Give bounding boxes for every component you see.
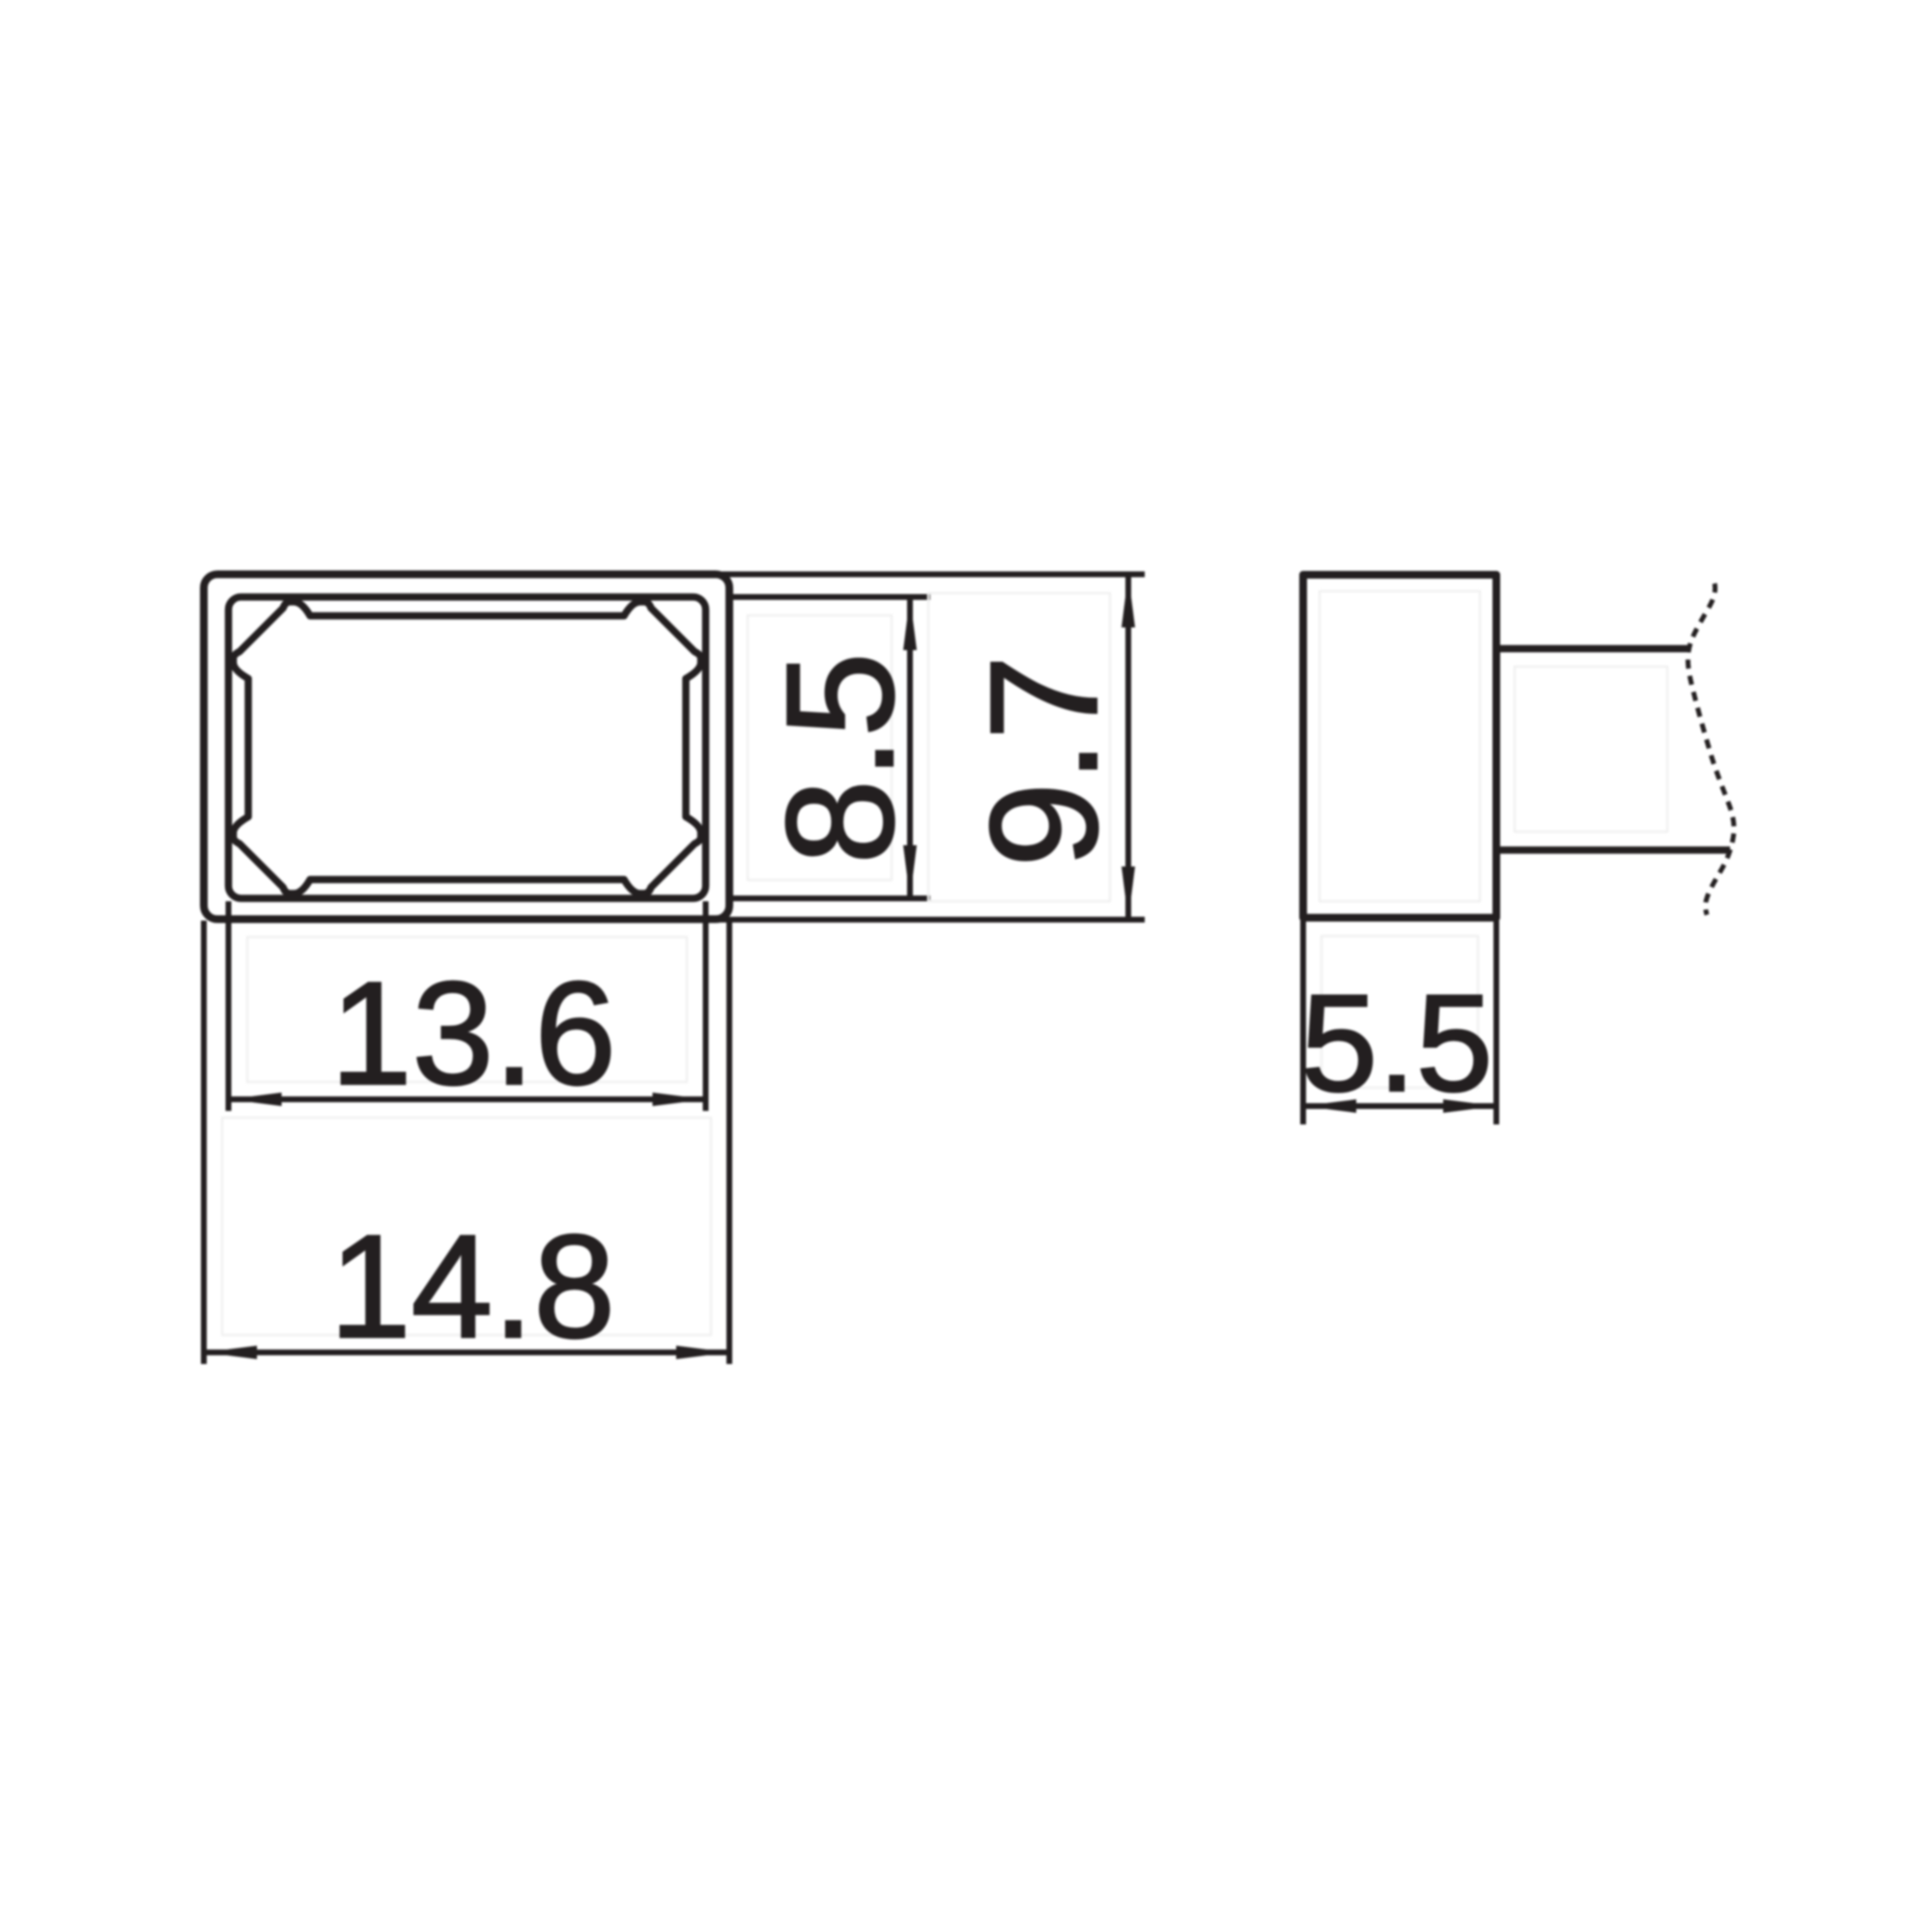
svg-text:13.6: 13.6	[330, 952, 616, 1116]
svg-text:5.5: 5.5	[1301, 967, 1493, 1121]
svg-text:14.8: 14.8	[329, 1205, 615, 1369]
svg-text:8.5: 8.5	[755, 652, 925, 865]
svg-text:9.7: 9.7	[959, 655, 1129, 867]
